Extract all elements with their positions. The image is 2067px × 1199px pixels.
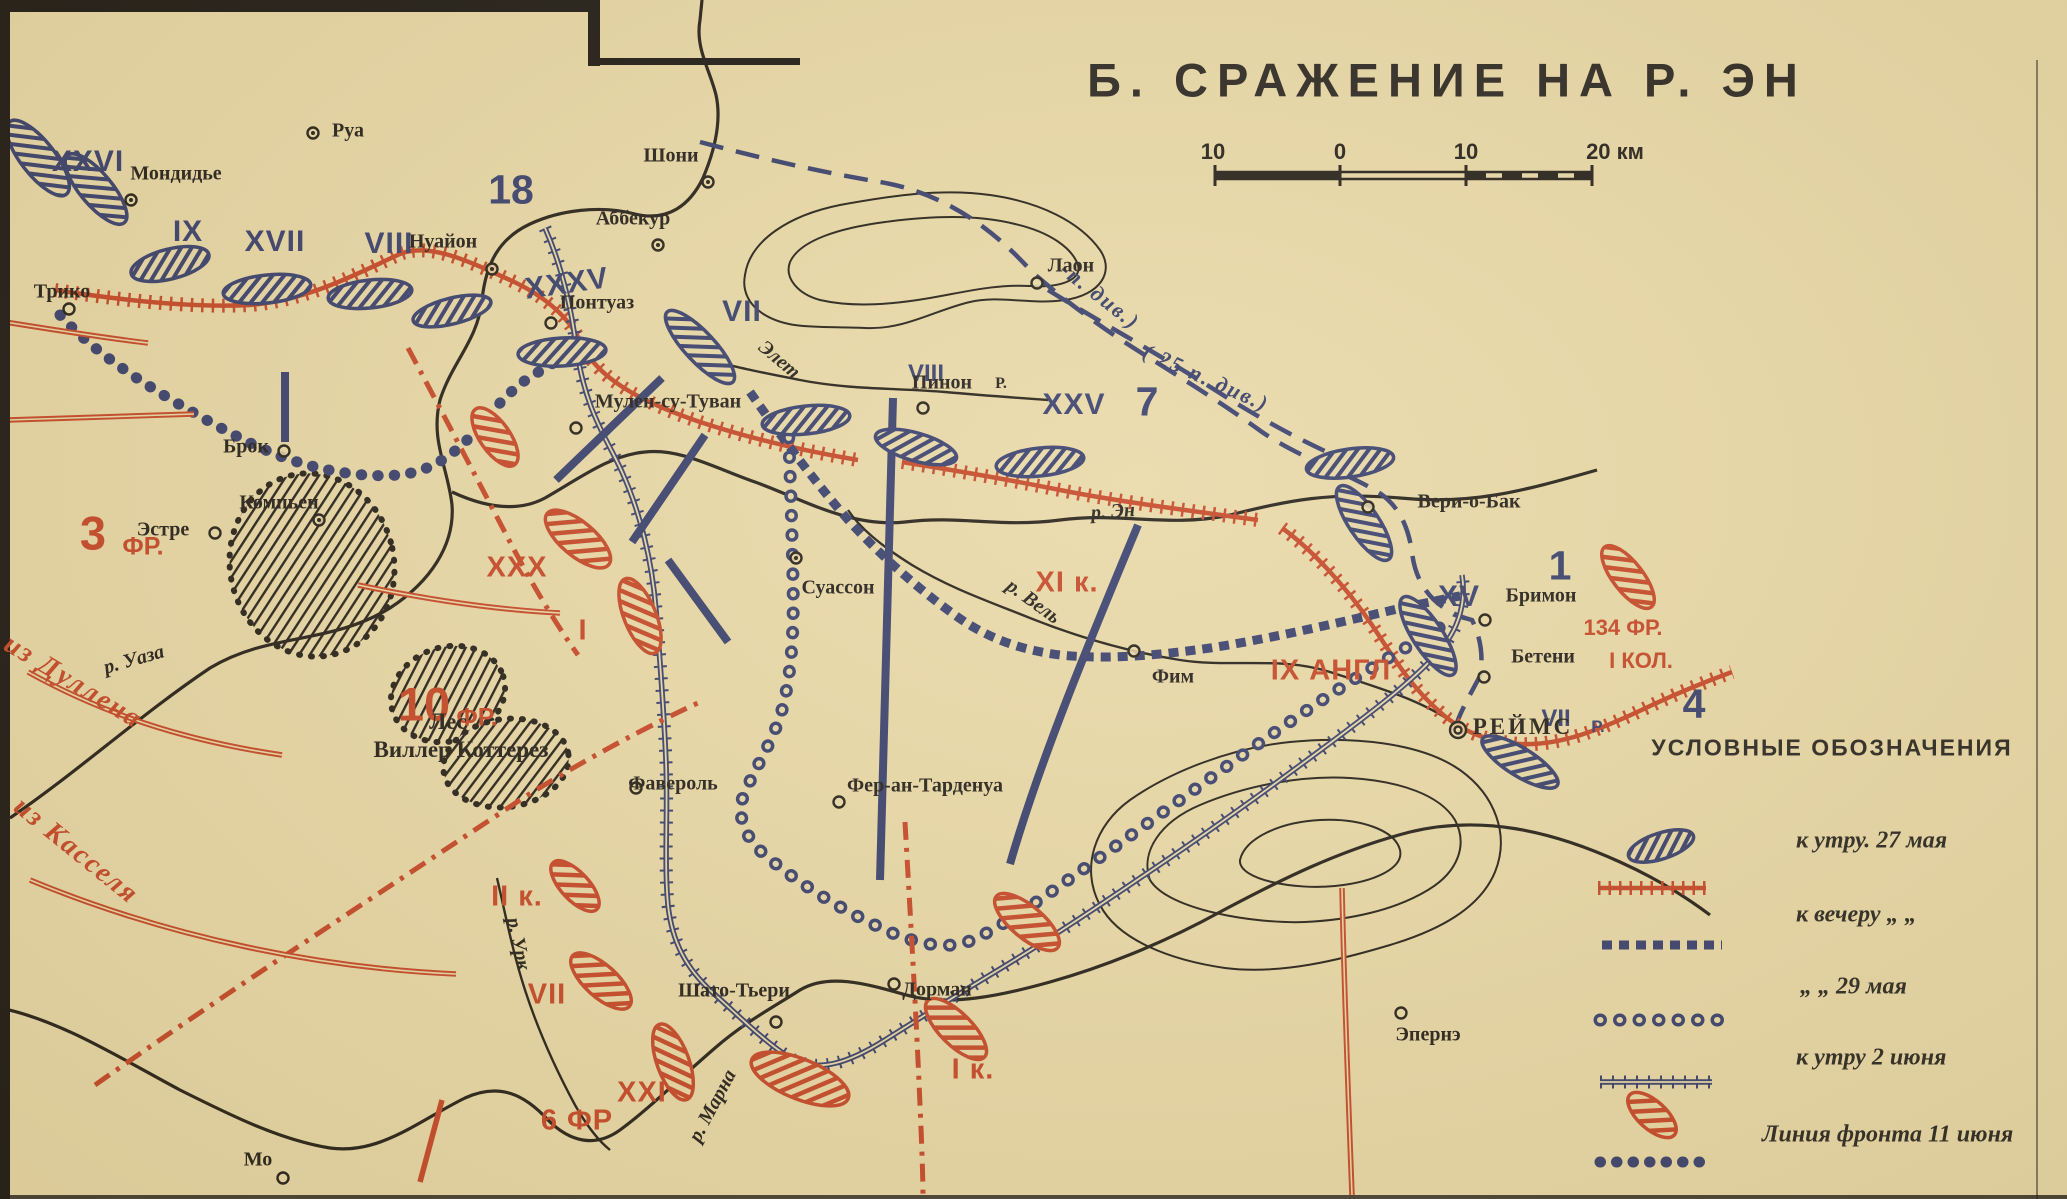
map-label: XI к. (1035, 567, 1098, 600)
river-marne (0, 825, 1710, 1149)
town-circle-icon (771, 1017, 782, 1028)
town-circle-inner-icon (490, 267, 494, 271)
scale-tick-label: 10 (1454, 139, 1478, 165)
river-ailette (688, 352, 1048, 400)
town-circle-icon (1396, 1008, 1407, 1019)
map-border-bottom (0, 1195, 2067, 1199)
map-label: р. Эн (1090, 499, 1136, 525)
blue-double-tick-front-11-june (545, 228, 1463, 1065)
blue-attack-arrows (285, 372, 1138, 880)
map-label: Виллер Коттерез (374, 737, 549, 763)
town-label: Эпернэ (1395, 1024, 1460, 1047)
map-label: VII (528, 979, 566, 1012)
map-label: XXV (1042, 388, 1105, 422)
town-label: Суассон (802, 577, 875, 600)
map-label: 7 (1136, 379, 1159, 426)
map-label: 134 ФР. (1583, 615, 1662, 641)
town-label: Брок (223, 436, 269, 459)
town-label: Бетени (1511, 646, 1575, 669)
map-label: Лес (429, 709, 467, 735)
legend-title: УСЛОВНЫЕ ОБОЗНАЧЕНИЯ (1651, 735, 2012, 762)
town-label: РЕЙМС (1473, 714, 1574, 740)
map-label: XVII (245, 225, 306, 259)
map-label: XXX (486, 552, 547, 585)
town-label: Шони (643, 145, 698, 168)
town-circle-icon (279, 446, 290, 457)
map-label: IX АНГЛ (1271, 655, 1391, 688)
map-title: Б. СРАЖЕНИЕ НА Р. ЭН (1087, 53, 1807, 108)
scale-tick-label: 0 (1334, 139, 1346, 165)
town-circle-icon (918, 403, 929, 414)
map-border-top (0, 0, 600, 12)
town-label: Руа (332, 120, 364, 143)
historical-battle-map: Б. СРАЖЕНИЕ НА Р. ЭН УСЛОВНЫЕ ОБОЗНАЧЕНИ… (0, 0, 2067, 1199)
town-label: Эстре (137, 519, 190, 542)
town-circle-inner-icon (794, 556, 798, 560)
town-circle-icon (1363, 502, 1374, 513)
legend-item-label: Линия фронта 11 июня (1762, 1122, 2013, 1149)
map-label: I (578, 615, 587, 648)
town-label: Компьен (239, 492, 318, 515)
town-label: Вери-о-Бак (1418, 491, 1521, 514)
map-label: 1 (1549, 543, 1572, 590)
map-label: Р. (995, 375, 1007, 393)
map-border-top-right (596, 58, 800, 65)
legend-red-oval-icon (1620, 1085, 1683, 1146)
map-label: VIII (364, 227, 413, 261)
map-label: 18 (488, 167, 534, 214)
legend-blue-hatched-oval-icon (1625, 823, 1698, 869)
town-label: Дорман (902, 979, 972, 1002)
map-label: Р. (1591, 717, 1605, 737)
town-label: Лаон (1048, 255, 1094, 278)
map-border-right (2036, 60, 2038, 1199)
town-label: Бримон (1506, 585, 1577, 608)
map-border-left (0, 0, 10, 1199)
town-label: Мондидье (130, 163, 221, 186)
town-circle-inner-icon (706, 180, 710, 184)
town-circle-icon (546, 318, 557, 329)
town-label: Пинон (912, 372, 972, 395)
map-border-step (588, 0, 600, 66)
map-label: 4 (1683, 681, 1706, 728)
town-label: Фер-ан-Тарденуа (847, 775, 1003, 798)
compiegne-forest (213, 458, 412, 672)
town-circle-icon (64, 304, 75, 315)
map-label: II к. (491, 881, 543, 914)
map-label: IX (173, 215, 203, 249)
town-circle-icon (1480, 615, 1491, 626)
town-label: Мулен-су-Туван (595, 391, 741, 414)
town-label: Фим (1152, 666, 1194, 689)
legend-item-label: к утру. 27 мая (1796, 828, 1947, 855)
town-label: Трико (34, 281, 90, 304)
town-label: Понтуаз (560, 292, 634, 315)
town-circle-icon (278, 1173, 289, 1184)
map-label: 6 ФР (541, 1105, 613, 1138)
town-circle-inner-icon (317, 518, 321, 522)
town-label: Нуайон (409, 231, 477, 254)
town-label: Шато-Тьери (678, 980, 790, 1003)
town-circle-icon (1032, 278, 1043, 289)
legend-item-label: к утру 2 июня (1796, 1045, 1946, 1072)
town-circle-icon (889, 979, 900, 990)
town-label: Мо (244, 1149, 273, 1172)
town-circle-inner-icon (1455, 727, 1462, 734)
town-circle-inner-icon (656, 243, 660, 247)
scale-tick-label: 20 км (1586, 139, 1644, 165)
town-circle-icon (210, 528, 221, 539)
town-circle-icon (571, 423, 582, 434)
legend-item-label: „ „ 29 мая (1800, 974, 1907, 1001)
town-circle-inner-icon (129, 198, 133, 202)
map-label: XXI (617, 1077, 667, 1110)
town-circle-icon (1129, 646, 1140, 657)
legend-symbols (1598, 823, 1722, 1162)
map-label: I к. (952, 1054, 995, 1087)
town-circle-icon (1479, 672, 1490, 683)
town-label: Фавероль (628, 773, 718, 796)
scale-bar (1215, 165, 1592, 186)
map-label: XXVI (52, 145, 124, 179)
legend-item-label: к вечеру „ „ (1796, 902, 1917, 929)
town-circle-inner-icon (311, 131, 315, 135)
map-label: I КОЛ. (1609, 648, 1673, 674)
town-circle-icon (834, 797, 845, 808)
town-label: Аббекур (596, 208, 670, 231)
map-label: XV (1438, 580, 1480, 614)
scale-tick-label: 10 (1201, 139, 1225, 165)
map-label: 3 (80, 506, 106, 561)
map-label: VII (722, 295, 762, 329)
